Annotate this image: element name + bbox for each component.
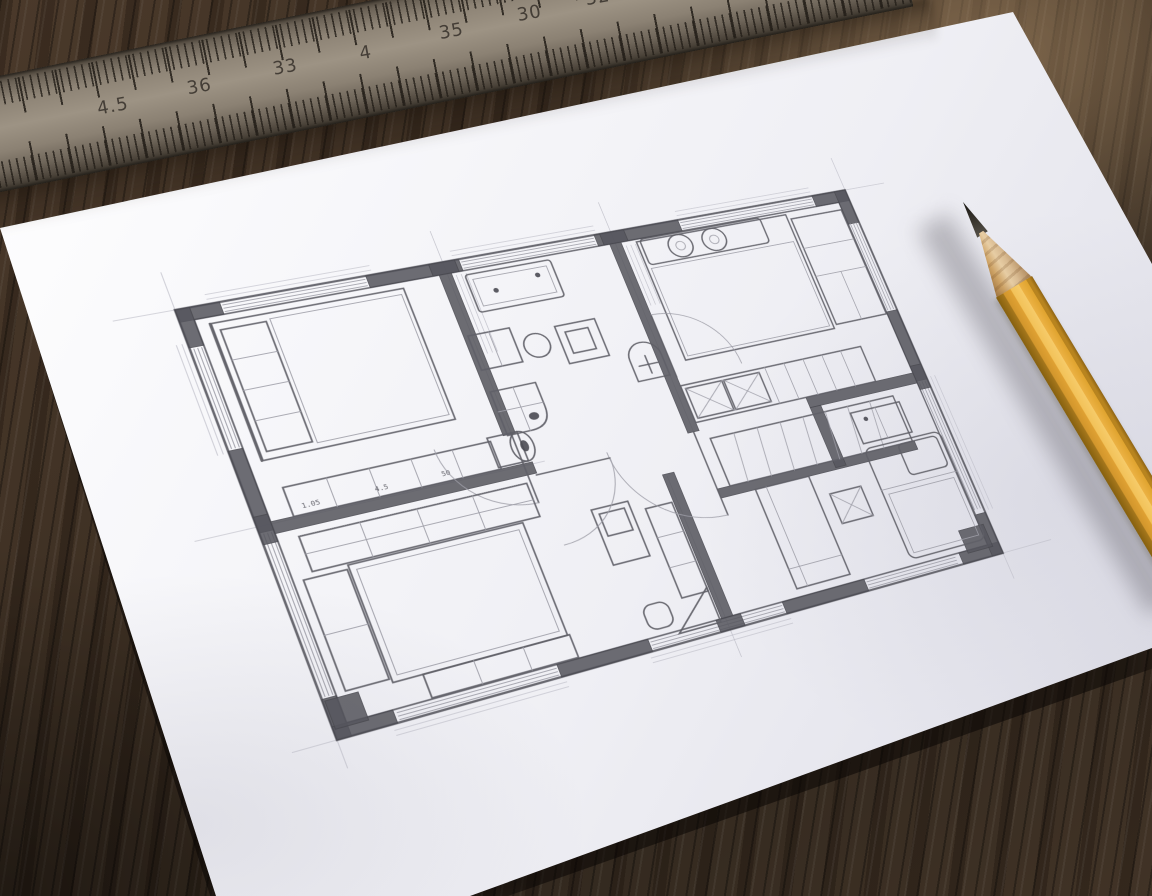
sketch-mark-1: 1.05 <box>300 498 321 510</box>
sketch-mark-2: 4.5 <box>373 482 389 493</box>
ruler-number: 4 <box>358 41 374 64</box>
ruler-number: 35 <box>437 19 465 44</box>
ruler-number: 36 <box>185 74 213 99</box>
stool-small <box>641 600 676 631</box>
bathroom <box>445 247 679 435</box>
photo-scene: 1.05 4.5 50 <box>0 0 1152 896</box>
ruler-number: 4.5 <box>95 93 130 119</box>
staircase <box>680 344 912 488</box>
stool <box>520 331 554 359</box>
bed-top-left <box>210 288 455 461</box>
ruler-number: 33 <box>271 55 299 80</box>
ruler-number: 30 <box>515 1 543 26</box>
ruler-number: 32 <box>583 0 611 10</box>
cabinet-right <box>850 402 912 444</box>
side-table <box>555 319 610 364</box>
